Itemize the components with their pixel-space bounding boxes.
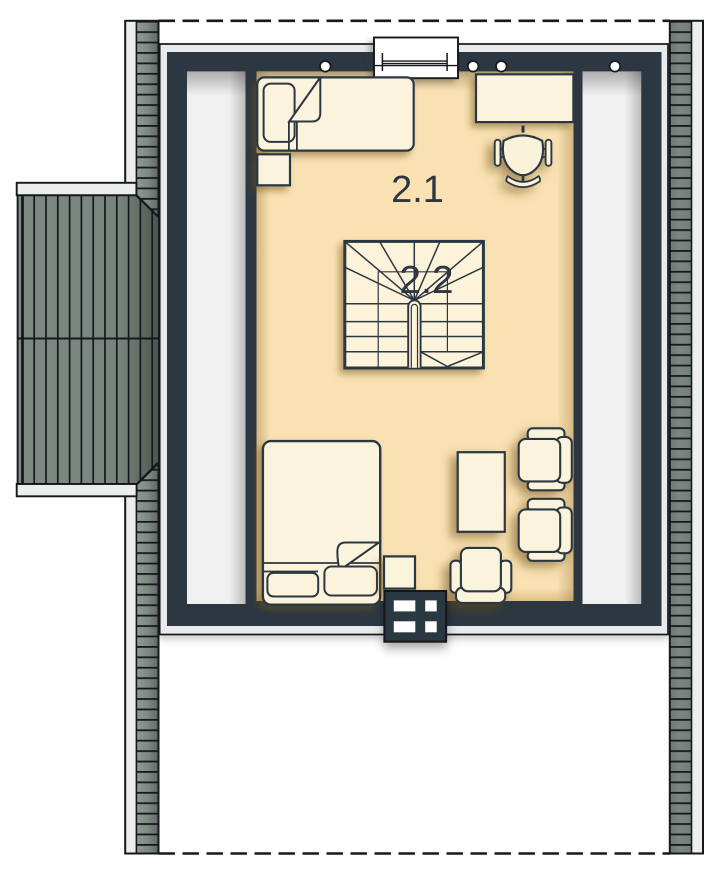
svg-text:2.2: 2.2 (399, 259, 453, 302)
svg-text:2.1: 2.1 (391, 169, 444, 211)
